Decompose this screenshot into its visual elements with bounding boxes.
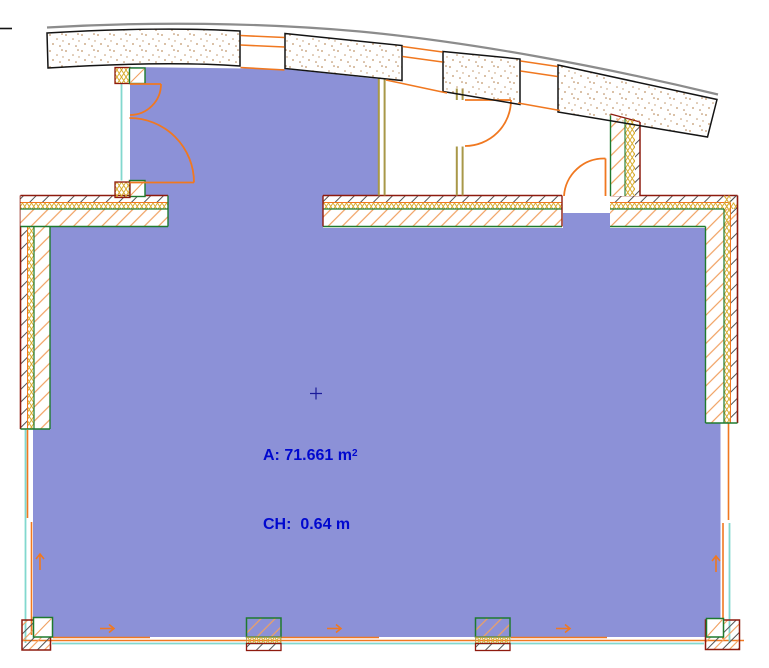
pier-base <box>247 644 282 651</box>
wall-masonry-layer <box>34 196 50 430</box>
pier-bottom-1[interactable] <box>247 618 282 651</box>
door-swing-arc <box>564 158 606 196</box>
pier-cap <box>247 618 282 637</box>
wall-insulation-layer <box>724 196 731 424</box>
facade-window[interactable] <box>521 61 558 67</box>
zone-stamp[interactable]: A: 71.661 m2 CH: 0.64 m <box>263 396 358 559</box>
facade-window[interactable] <box>403 57 443 63</box>
wall-masonry-layer <box>323 209 562 227</box>
wall-top-right[interactable] <box>610 196 738 227</box>
pier-cap <box>476 618 511 637</box>
pier-bottom-2[interactable] <box>476 618 511 651</box>
wall-insulation-layer <box>323 203 562 210</box>
wall-cladding-layer <box>21 196 28 430</box>
zone-area-label: A: 71.661 m2 <box>263 442 358 467</box>
facade-window[interactable] <box>386 80 447 93</box>
facade-segment[interactable] <box>47 29 240 68</box>
facade-window[interactable] <box>521 71 558 77</box>
zone-area-exponent: 2 <box>352 448 358 459</box>
partition-walls[interactable] <box>379 79 463 196</box>
wall-top-middle[interactable] <box>323 196 562 227</box>
wall-insulation-layer <box>610 203 738 210</box>
wall-masonry-layer <box>706 227 725 424</box>
facade-segment[interactable] <box>443 52 520 105</box>
wall-insulation-layer <box>28 196 35 430</box>
wall-cladding-layer <box>323 196 562 203</box>
pier-entrance-top[interactable] <box>115 68 145 84</box>
facade-window[interactable] <box>241 45 285 47</box>
floor-plan-viewport[interactable]: A: 71.661 m2 CH: 0.64 m <box>0 0 769 668</box>
wall-left[interactable] <box>21 196 51 430</box>
pier-base <box>476 644 511 651</box>
wall-insulation-layer <box>21 203 169 210</box>
wall-masonry-layer <box>611 114 626 196</box>
facade-window[interactable] <box>241 36 285 38</box>
wall-cladding-layer <box>731 196 738 424</box>
wall-vestibule-right[interactable] <box>611 114 641 196</box>
door-vestibule-to-room[interactable] <box>564 158 606 196</box>
column-bottom-right[interactable] <box>706 619 740 650</box>
pier-body <box>115 68 130 84</box>
door-swing-arc <box>465 100 511 146</box>
wall-right[interactable] <box>706 196 738 424</box>
floor-plan-canvas[interactable] <box>0 0 769 668</box>
pier-insulation <box>247 637 282 644</box>
wall-masonry-layer <box>21 209 169 227</box>
wall-top-left[interactable] <box>21 196 169 227</box>
wall-masonry-layer <box>610 209 738 227</box>
pier-insulation <box>476 637 511 644</box>
column-bottom-left[interactable] <box>22 618 53 651</box>
zone-ceiling-height-label: CH: 0.64 m <box>263 513 358 536</box>
wall-cladding-layer <box>21 196 169 203</box>
door-vestibule-partition[interactable] <box>465 100 511 146</box>
pier-body <box>115 182 130 198</box>
facade-window[interactable] <box>403 47 443 53</box>
facade-window[interactable] <box>518 103 560 111</box>
wall-insulation-layer <box>625 119 635 196</box>
wall-cladding-layer <box>610 196 738 203</box>
